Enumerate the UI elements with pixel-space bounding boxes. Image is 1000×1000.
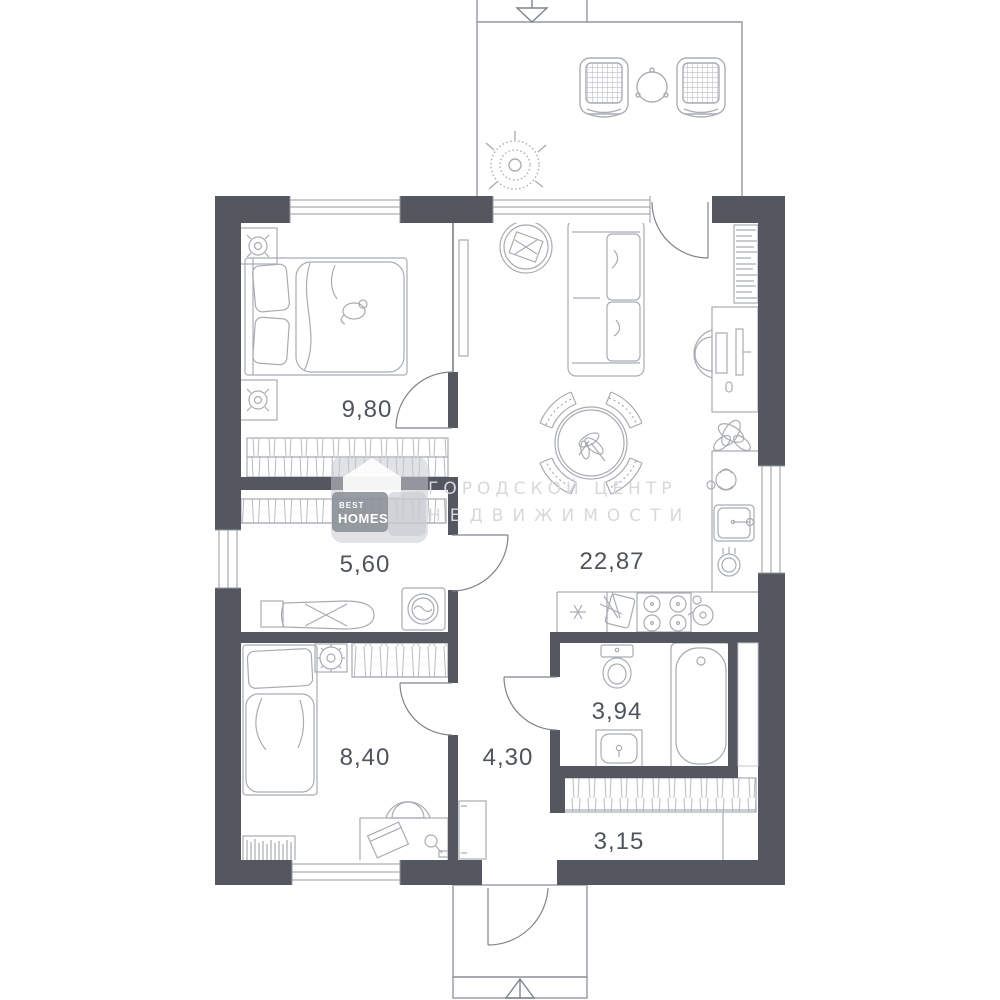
room-label-dressing: 5,60 <box>340 551 391 578</box>
entrance-arrow-icon <box>506 979 534 998</box>
tv-panel <box>459 240 468 356</box>
ceiling-vent <box>315 644 347 672</box>
window <box>493 196 650 223</box>
watermark-line2: НЕДВИЖИМОСТИ <box>428 506 691 526</box>
living-furniture <box>459 219 758 494</box>
table-plant <box>577 430 606 461</box>
porch <box>453 885 587 998</box>
nightstand <box>239 380 277 420</box>
room-label-living-kitchen: 22,87 <box>579 548 644 575</box>
stove <box>637 593 691 632</box>
hall-cabinet <box>459 801 486 859</box>
cat-sketch <box>341 300 367 324</box>
wall-bookshelf <box>734 225 758 303</box>
bedroom1-furniture <box>239 228 448 477</box>
ironing-board <box>261 601 374 629</box>
room-label-hallway: 4,30 <box>483 744 534 771</box>
terrace-plant <box>486 131 546 189</box>
floor-plan-page: 9,80 5,60 22,87 8,40 4,30 3,94 3,15 BEST… <box>0 0 1000 1000</box>
desk-lamp <box>425 835 448 857</box>
window <box>758 466 785 573</box>
cutting-board <box>600 592 635 628</box>
dish-rack <box>718 547 740 576</box>
desk-chair <box>386 802 430 818</box>
room-label-entry: 3,15 <box>594 828 645 855</box>
room-label-bedroom2: 8,40 <box>340 744 391 771</box>
bathroom-sink <box>596 730 642 767</box>
large-leaf-plant <box>711 417 753 453</box>
watermark: BEST HOMES ГОРОДСКОЙ ЦЕНТР НЕДВИЖИМОСТИ <box>331 456 691 543</box>
window <box>215 530 241 588</box>
room-label-bathroom: 3,94 <box>592 698 643 725</box>
single-bed <box>243 645 317 795</box>
study-chair <box>694 330 712 378</box>
entrance-arrow-icon <box>517 0 547 22</box>
terrace-chair <box>580 58 628 117</box>
room-label-bedroom1: 9,80 <box>342 396 393 423</box>
dining-chair <box>540 392 576 428</box>
sofa <box>568 219 644 376</box>
double-bed <box>245 258 407 375</box>
kettle <box>688 596 713 625</box>
fridge <box>570 605 586 619</box>
watermark-brand-top: BEST <box>339 501 364 510</box>
bathtub <box>671 643 731 769</box>
window <box>292 860 400 885</box>
door-bedroom2 <box>400 683 452 735</box>
dining-chair <box>606 392 642 428</box>
study-desk <box>712 307 758 412</box>
floor-plan-drawing: 9,80 5,60 22,87 8,40 4,30 3,94 3,15 BEST… <box>0 0 1000 1000</box>
watermark-logo: BEST HOMES <box>331 456 428 543</box>
bookshelf <box>243 836 295 862</box>
entry-furniture <box>563 778 756 860</box>
watermark-line1: ГОРОДСКОЙ ЦЕНТР <box>428 477 676 499</box>
desk <box>360 818 448 862</box>
snowflake-icon <box>570 605 586 619</box>
watermark-brand-bottom: HOMES <box>338 511 388 526</box>
shaft-niche <box>738 643 758 766</box>
doors <box>396 202 708 945</box>
hallway-furniture <box>459 801 486 859</box>
kitchen-sink <box>714 505 754 541</box>
window <box>290 196 400 223</box>
terrace-side-table <box>636 68 668 102</box>
door-bedroom1 <box>396 372 452 428</box>
door-bathroom <box>504 677 557 730</box>
entry-wardrobe <box>563 778 756 860</box>
door-entry <box>488 888 548 945</box>
door-terrace <box>652 202 708 258</box>
door-dressing <box>452 535 508 591</box>
counter-plant <box>707 469 736 490</box>
dining-table <box>555 407 627 479</box>
washing-machine <box>402 588 445 630</box>
coffee-table <box>500 221 552 273</box>
terrace <box>477 0 742 196</box>
toilet <box>601 645 633 688</box>
wardrobe <box>352 643 448 677</box>
terrace-chair <box>677 58 725 117</box>
terrace-outline <box>477 22 742 196</box>
